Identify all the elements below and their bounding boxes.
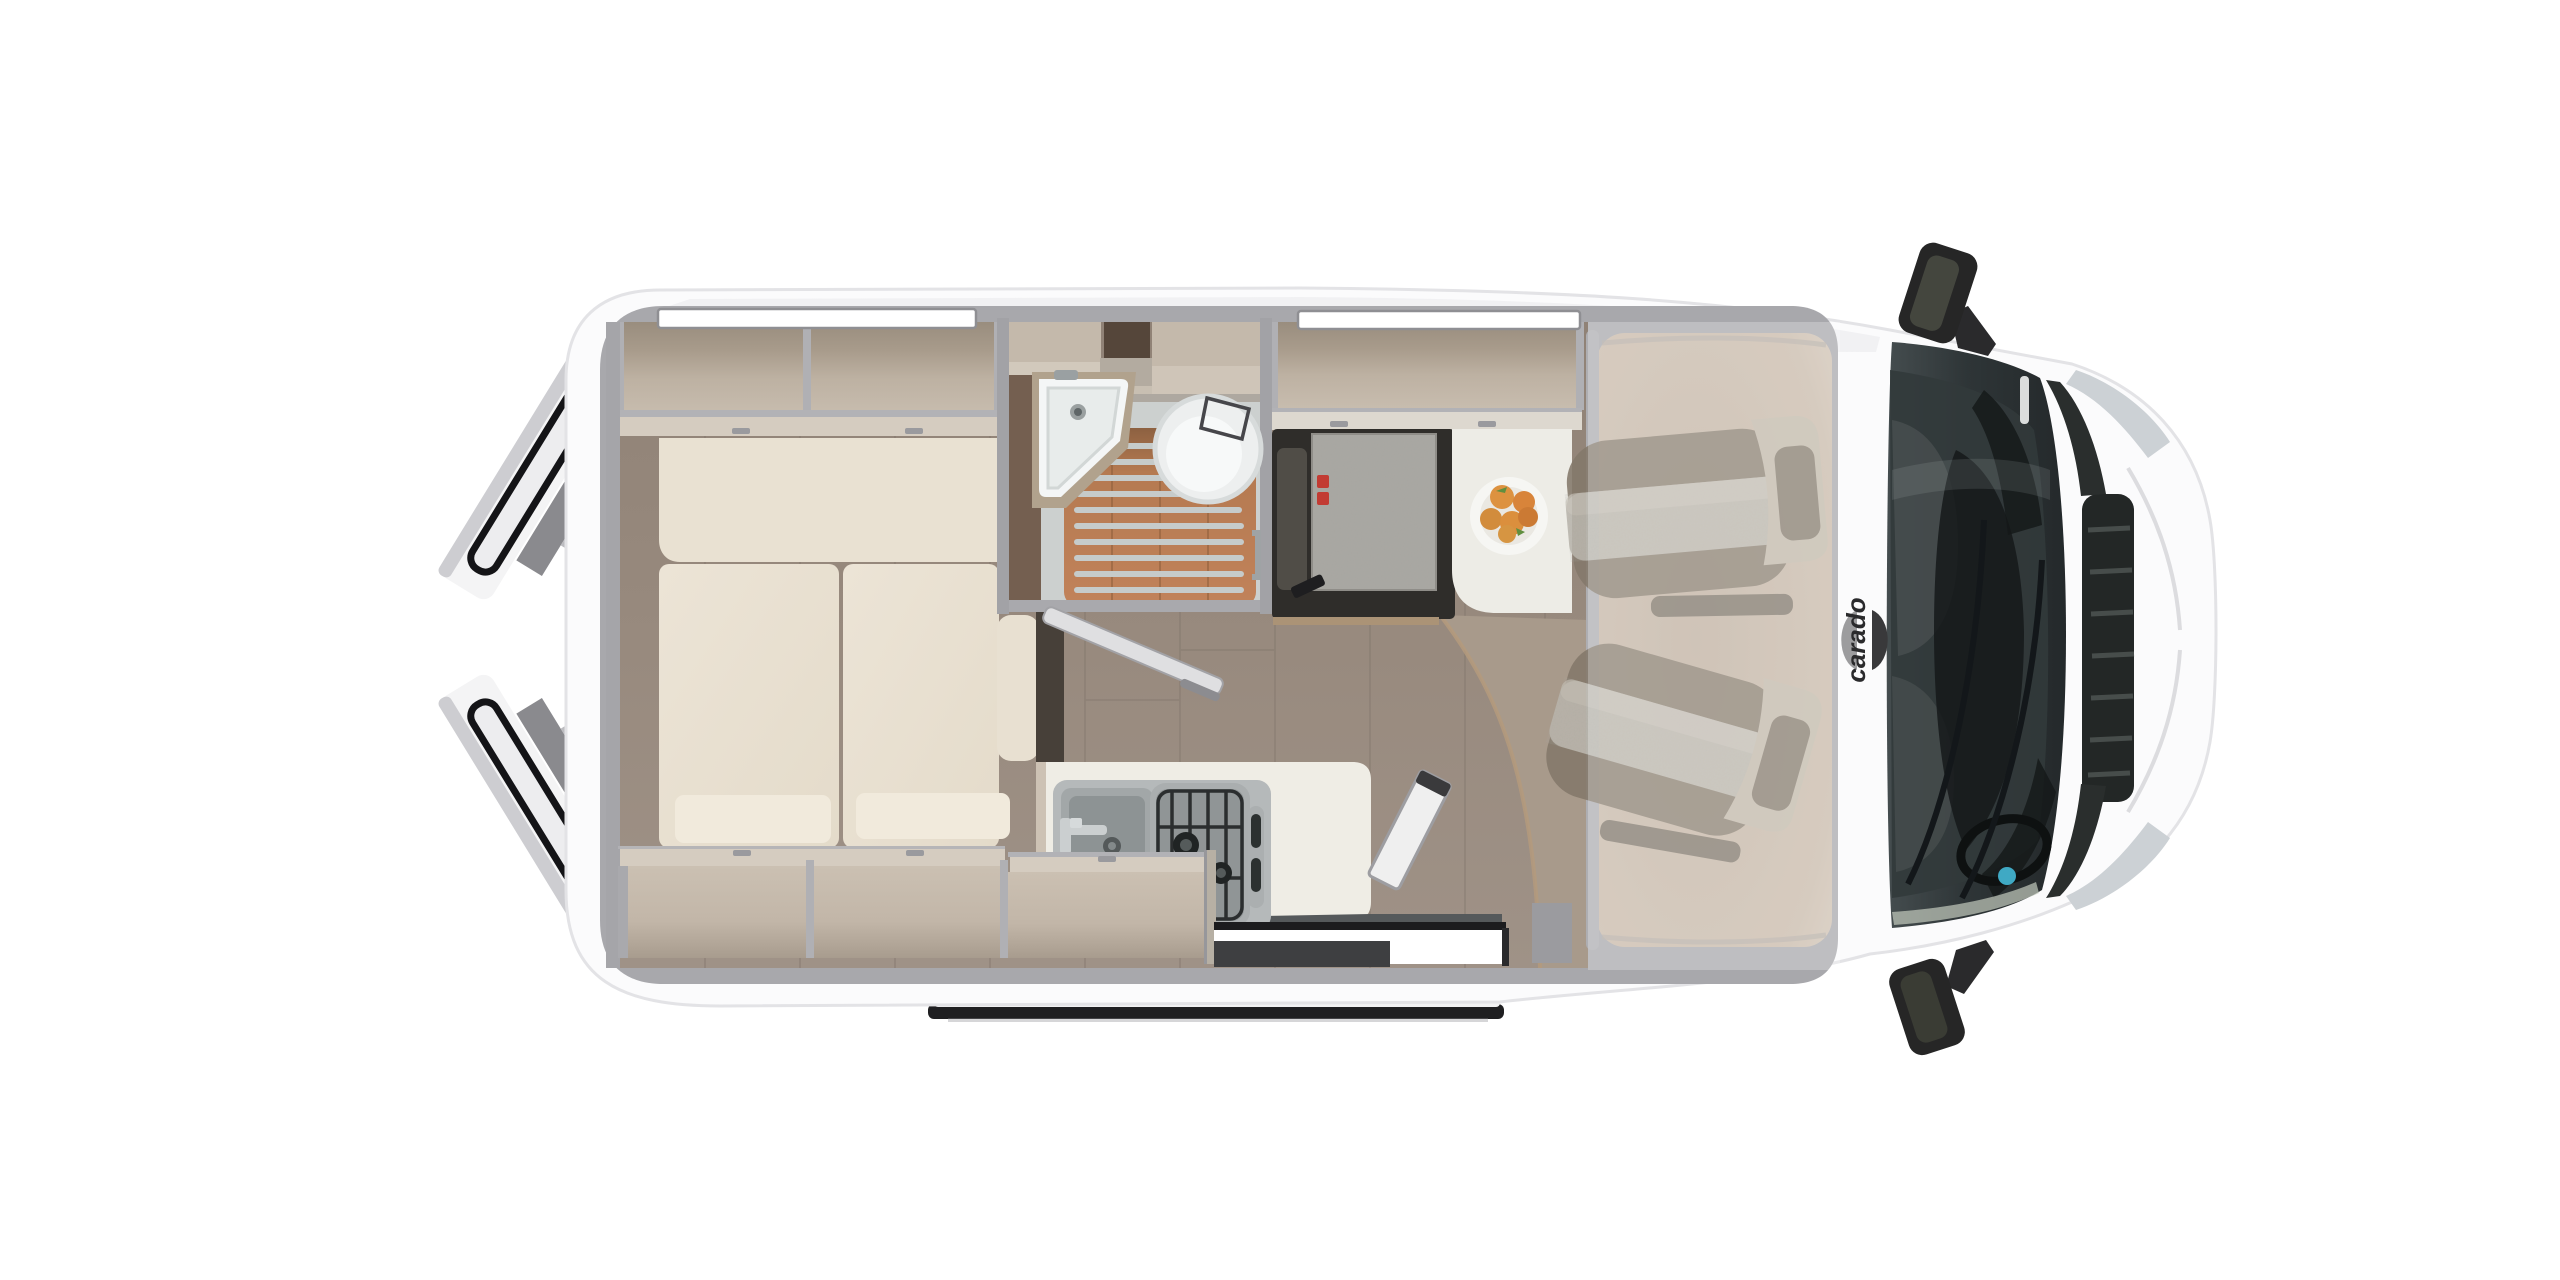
svg-text:carado: carado	[1841, 597, 1871, 682]
